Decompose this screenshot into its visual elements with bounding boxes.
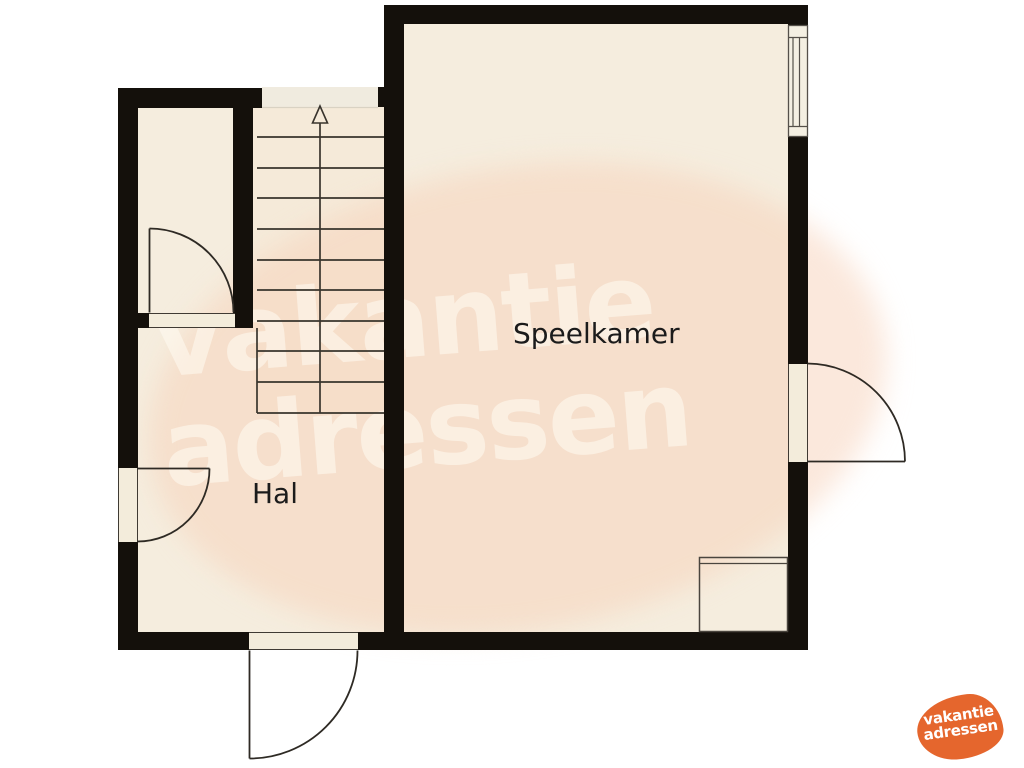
vakantieadressen-logo-text: vakantie adressen (915, 702, 1004, 744)
linework-overlay (0, 0, 1024, 768)
corner-fixture-outline (700, 558, 788, 632)
floorplan-canvas: vakantie adressen (0, 0, 1024, 768)
room-label-hal: Hal (252, 477, 298, 510)
hall-west-door-swing-arc (138, 469, 210, 542)
stairs-up-arrow-icon (313, 106, 328, 123)
window-frame (789, 26, 808, 137)
room-label-speelkamer: Speelkamer (513, 317, 680, 350)
closet-door-swing-arc (150, 229, 234, 313)
window (789, 26, 808, 137)
front-door-swing-arc (250, 651, 358, 759)
corner-fixture (700, 558, 788, 632)
speelkamer-east-door-swing-arc (808, 364, 906, 462)
